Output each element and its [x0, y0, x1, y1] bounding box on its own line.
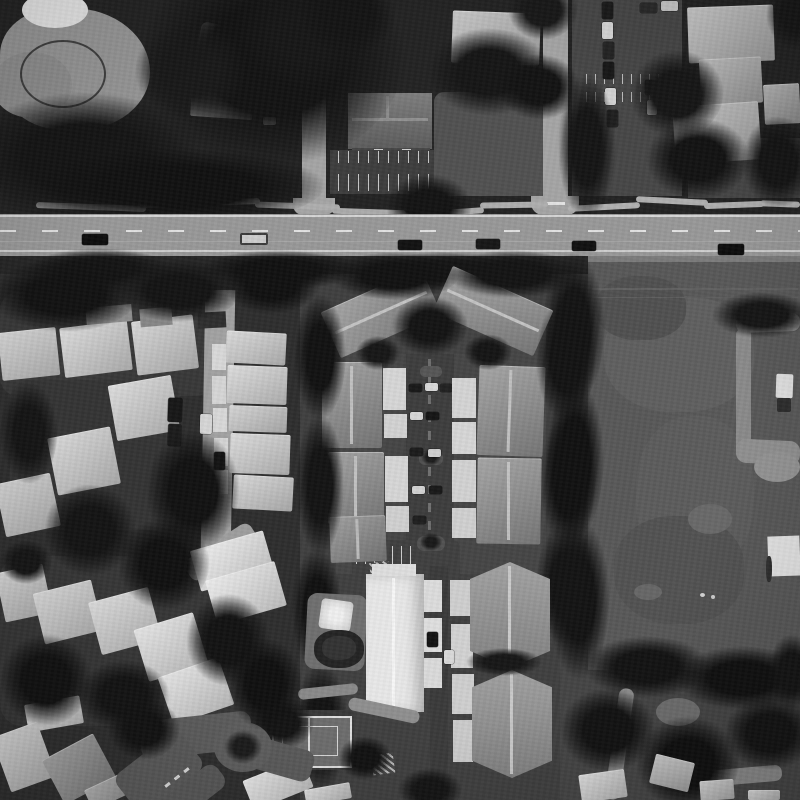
vignette	[0, 0, 800, 800]
aerial-photo: Black-and-white aerial photograph of a s…	[0, 0, 800, 800]
